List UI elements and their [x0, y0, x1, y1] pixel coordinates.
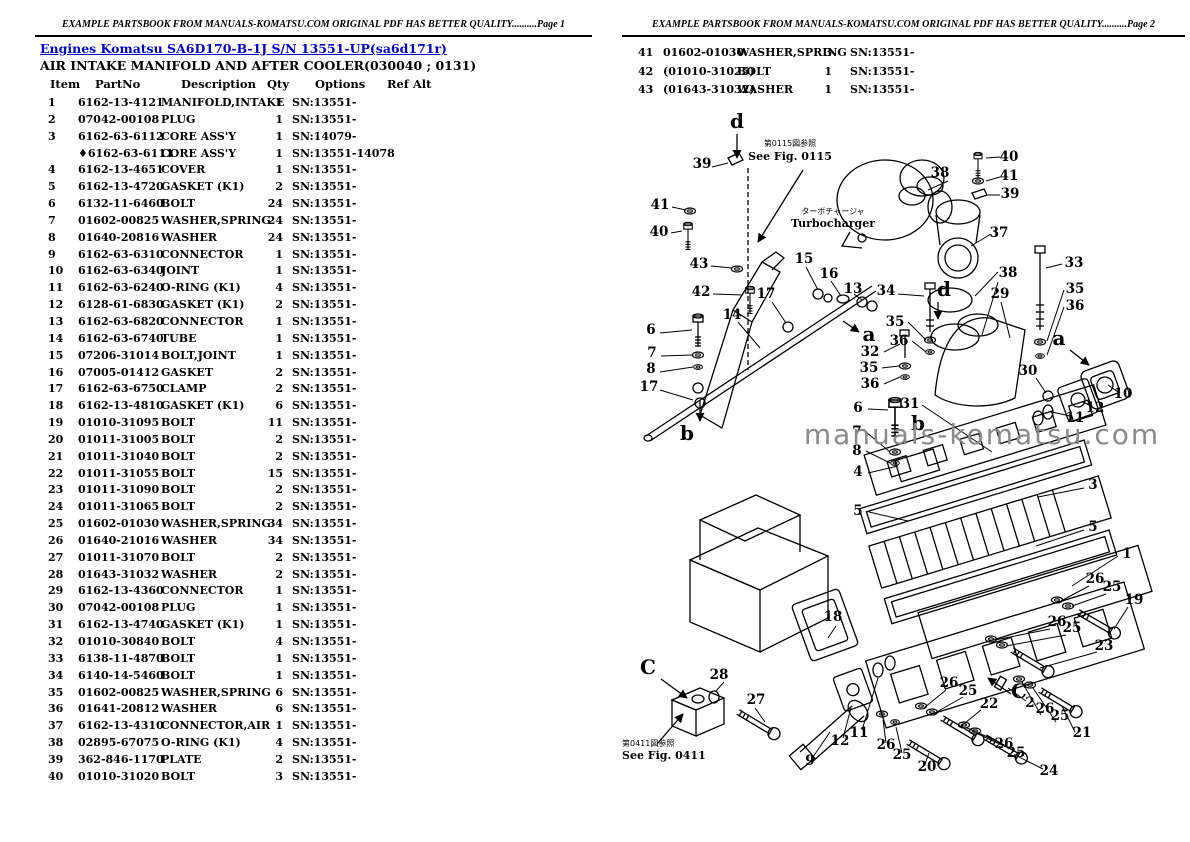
callout-26: 26 [1086, 571, 1105, 587]
callout-39: 39 [693, 156, 712, 172]
cell-qty: 2 [261, 179, 283, 196]
cell-description: WASHER [737, 81, 793, 100]
exploded-parts-diagram: 第0115図参照 See Fig. 0115 ターボチャージャ Turbocha… [595, 100, 1190, 842]
cell-qty: 2 [261, 482, 283, 499]
cell-options: SN:13551- [292, 280, 357, 297]
table-row: 3501602-00825WASHER,SPRING6SN:13551- [40, 685, 592, 702]
cover-4 [895, 449, 940, 482]
cell-options: SN:13551- [292, 752, 357, 769]
cell-description: GASKET [161, 365, 213, 382]
callout-6: 6 [646, 322, 655, 338]
callout-30: 30 [1019, 363, 1038, 379]
cell-qty: 2 [261, 752, 283, 769]
table-row: 36162-63-6112CORE ASS'Y1SN:14079- [40, 129, 592, 146]
callout-41: 41 [1000, 168, 1019, 184]
cell-options: SN:13551- [292, 381, 357, 398]
cell-partno: 6162-13-4810 [78, 398, 164, 415]
cell-options: SN:13551- [292, 701, 357, 718]
table-row: 43(01643-31032)WASHER1SN:13551- [622, 81, 1182, 100]
bolt-22-icon [939, 713, 986, 748]
cell-qty: 6 [261, 685, 283, 702]
cell-qty: 1 [820, 81, 832, 100]
cell-description: CORE ASS'Y [161, 146, 236, 163]
table-row: 66132-11-6460BOLT24SN:13551- [40, 196, 592, 213]
cell-qty: 1 [261, 95, 283, 112]
cell-description: GASKET (K1) [161, 617, 244, 634]
callout-11: 11 [850, 725, 869, 741]
cell-item: 9 [48, 247, 56, 264]
table-row: 116162-63-6240O-RING (K1)4SN:13551- [40, 280, 592, 297]
callout-20: 20 [918, 759, 937, 775]
cell-qty: 2 [261, 297, 283, 314]
cell-qty: 15 [261, 466, 283, 483]
cell-options: SN:13551- [292, 213, 357, 230]
table-row: 2001011-31005BOLT2SN:13551- [40, 432, 592, 449]
cell-options: SN:13551- [292, 365, 357, 382]
table-row: 3802895-67075O-RING (K1)4SN:13551- [40, 735, 592, 752]
cell-description: BOLT [161, 499, 195, 516]
cell-qty: 6 [261, 398, 283, 415]
table-row: 106162-63-6340JOINT1SN:13551- [40, 263, 592, 280]
cell-item: 14 [48, 331, 63, 348]
callout-25: 25 [1051, 708, 1070, 724]
cell-options: SN:13551-14078 [292, 146, 395, 163]
washer-28-icon [709, 691, 719, 703]
cell-description: BOLT [161, 432, 195, 449]
cell-partno: 6162-63-6740 [78, 331, 164, 348]
callout-6: 6 [853, 400, 862, 416]
callout-1: 1 [1122, 546, 1131, 562]
callout-32: 32 [861, 344, 880, 360]
cell-item: 30 [48, 600, 63, 617]
cell-description: CONNECTOR,AIR [161, 718, 270, 735]
cell-qty: 1 [261, 146, 283, 163]
cell-options: SN:13551- [292, 162, 357, 179]
cell-partno: 6162-13-4740 [78, 617, 164, 634]
table-row: 4101602-01030WASHER,SPRING3SN:13551- [622, 44, 1182, 63]
bolt-6-icon [693, 314, 703, 346]
callout-36: 36 [1066, 298, 1085, 314]
cell-qty: 4 [261, 634, 283, 651]
cell-qty: 2 [261, 381, 283, 398]
bolt-40-icon [974, 152, 982, 178]
cell-item: 38 [48, 735, 63, 752]
cell-options: SN:13551- [292, 466, 357, 483]
callout-a: a [1053, 326, 1066, 350]
o-ring-11-icon [873, 663, 883, 677]
callout-41: 41 [651, 197, 670, 213]
cell-partno: 6128-61-6830 [78, 297, 164, 314]
table-row: 2101011-31040BOLT2SN:13551- [40, 449, 592, 466]
cell-options: SN:13551- [292, 95, 357, 112]
cell-partno: 6138-11-4870 [78, 651, 164, 668]
cell-description: GASKET (K1) [161, 398, 244, 415]
cell-partno: 01010-31020 [78, 769, 159, 786]
cell-description: O-RING (K1) [161, 280, 241, 297]
cell-item: 29 [48, 583, 63, 600]
cell-options: SN:13551- [292, 499, 357, 516]
cell-item: 13 [48, 314, 63, 331]
cell-description: BOLT [161, 466, 195, 483]
cell-item: 34 [48, 668, 63, 685]
cell-description: TUBE [161, 331, 196, 348]
cell-options: SN:13551- [292, 449, 357, 466]
table-row: 316162-13-4740GASKET (K1)1SN:13551- [40, 617, 592, 634]
cell-qty: 1 [261, 314, 283, 331]
o-ring-11-icon [885, 656, 895, 670]
bolt-19-icon [1075, 607, 1123, 641]
bracket-leader-38 [975, 272, 998, 335]
table-row: 3601641-20812WASHER6SN:13551- [40, 701, 592, 718]
o-ring-38-icon [931, 324, 979, 350]
cell-description: BOLT [161, 769, 195, 786]
washer-26-icon [916, 703, 927, 709]
cell-description: WASHER [161, 230, 217, 247]
cell-partno: 01011-31065 [78, 499, 159, 516]
cover-box [690, 495, 828, 652]
callout-36: 36 [890, 333, 909, 349]
cell-description: JOINT [161, 263, 199, 280]
table-row: 2601640-21016WASHER34SN:13551- [40, 533, 592, 550]
cell-description: WASHER [161, 567, 217, 584]
cell-item: 28 [48, 567, 63, 584]
bolt-27-icon [735, 707, 782, 742]
fig0411-note-jp: 第0411図参照 [622, 738, 674, 748]
callout-8: 8 [646, 361, 655, 377]
table-row: 176162-63-6750CLAMP2SN:13551- [40, 381, 592, 398]
cell-qty: 4 [261, 280, 283, 297]
callout-a: a [863, 322, 876, 346]
cell-qty: 1 [261, 247, 283, 264]
cell-partno: 6162-63-6112 [78, 129, 164, 146]
col-ref-alt: Ref Alt [387, 77, 431, 91]
callout-33: 33 [1065, 255, 1084, 271]
callout-25: 25 [1063, 620, 1082, 636]
callout-38: 38 [931, 165, 950, 181]
cell-options: SN:13551- [292, 230, 357, 247]
cover-1 [918, 545, 1152, 658]
table-row: ♦6162-63-6111CORE ASS'Y1SN:13551-14078 [40, 146, 592, 163]
cell-item: 1 [48, 95, 56, 112]
cell-partno: 6140-14-5460 [78, 668, 164, 685]
table-row: 146162-63-6740TUBE1SN:13551- [40, 331, 592, 348]
callout-C: C [640, 655, 656, 679]
callout-4: 4 [853, 464, 862, 480]
cell-partno: 6162-13-4651 [78, 162, 164, 179]
cell-partno: 6162-13-4360 [78, 583, 164, 600]
cell-options: SN:13551- [292, 583, 357, 600]
gasket-18 [791, 588, 859, 661]
cell-options: SN:13551- [292, 297, 357, 314]
cell-description: WASHER,SPRING [161, 685, 271, 702]
callout-25: 25 [1007, 745, 1026, 761]
cell-options: SN:13551- [292, 263, 357, 280]
cell-options: SN:14079- [292, 129, 357, 146]
callout-27: 27 [747, 692, 766, 708]
cell-partno: 07042-00108 [78, 112, 159, 129]
table-row: 3007042-00108PLUG1SN:13551- [40, 600, 592, 617]
cell-partno: 6162-63-6750 [78, 381, 164, 398]
cell-description: GASKET (K1) [161, 179, 244, 196]
cell-qty: 1 [261, 348, 283, 365]
callout-38: 38 [999, 265, 1018, 281]
cell-item: 6 [48, 196, 56, 213]
callout-23: 23 [1095, 638, 1114, 654]
cell-options: SN:13551- [292, 516, 357, 533]
cell-description: CLAMP [161, 381, 206, 398]
cell-item: 19 [48, 415, 63, 432]
clamp-17-icon [693, 383, 703, 393]
col-item: Item [50, 77, 80, 91]
callout-2: 2 [1025, 695, 1034, 711]
washer-36-icon [926, 350, 935, 355]
cell-options: SN:13551- [292, 482, 357, 499]
cell-item: 16 [48, 365, 63, 382]
plug-30-icon [1043, 391, 1053, 401]
table-row: 46162-13-4651COVER1SN:13551- [40, 162, 592, 179]
table-row: 1507206-31014BOLT,JOINT1SN:13551- [40, 348, 592, 365]
table-row: 336138-11-4870BOLT1SN:13551- [40, 651, 592, 668]
cell-partno: 01602-01030 [663, 44, 744, 63]
cell-description: WASHER [161, 533, 217, 550]
callout-28: 28 [710, 667, 729, 683]
cell-partno: 01011-31055 [78, 466, 159, 483]
cell-options: SN:13551- [292, 314, 357, 331]
cell-description: PLUG [161, 112, 195, 129]
cell-item: 15 [48, 348, 63, 365]
table-row: 2801643-31032WASHER2SN:13551- [40, 567, 592, 584]
cell-partno: 02895-67075 [78, 735, 159, 752]
table-row: 136162-63-6820CONNECTOR1SN:13551- [40, 314, 592, 331]
cell-description: GASKET (K1) [161, 297, 244, 314]
table-row: 346140-14-5460BOLT1SN:13551- [40, 668, 592, 685]
cell-description: COVER [161, 162, 205, 179]
cell-item: 10 [48, 263, 63, 280]
manifold-block [866, 582, 1145, 728]
table-row: 2401011-31065BOLT2SN:13551- [40, 499, 592, 516]
cell-qty: 6 [261, 701, 283, 718]
callout-19: 19 [1125, 592, 1144, 608]
cell-qty: 1 [261, 263, 283, 280]
cell-partno: 01602-00825 [78, 685, 159, 702]
cell-qty: 1 [820, 63, 832, 82]
fig0411-part [672, 688, 724, 736]
cell-options: SN:13551- [292, 398, 357, 415]
table-row: 801640-20816WASHER24SN:13551- [40, 230, 592, 247]
cell-item: 43 [638, 81, 653, 100]
washer-36-icon [1036, 354, 1045, 359]
callout-12: 12 [831, 733, 850, 749]
plate-39-icon [972, 189, 987, 199]
cell-partno: 6162-63-6310 [78, 247, 164, 264]
cell-item: 2 [48, 112, 56, 129]
callout-26: 26 [940, 675, 959, 691]
table-row: 3201010-30840BOLT4SN:13551- [40, 634, 592, 651]
gasket-12b [833, 668, 874, 712]
col-options: Options [315, 77, 365, 91]
cell-item: 5 [48, 179, 56, 196]
cell-options: SN:13551- [292, 600, 357, 617]
cell-item: 22 [48, 466, 63, 483]
callout-34: 34 [877, 283, 896, 299]
cell-partno: 01640-20816 [78, 230, 159, 247]
cell-description: BOLT,JOINT [161, 348, 236, 365]
callout-5: 5 [1088, 519, 1097, 535]
washer-25-icon [891, 720, 900, 725]
cell-description: BOLT [161, 668, 195, 685]
cell-qty: 2 [261, 449, 283, 466]
table-row: 4001010-31020BOLT3SN:13551- [40, 769, 592, 786]
cell-qty: 3 [820, 44, 832, 63]
cell-item: 18 [48, 398, 63, 415]
cell-qty: 11 [261, 415, 283, 432]
table-row: 2701011-31070BOLT2SN:13551- [40, 550, 592, 567]
callout-12: 12 [1086, 400, 1105, 416]
cell-item: 7 [48, 213, 56, 230]
cell-partno: 07042-00108 [78, 600, 159, 617]
cell-item: 26 [48, 533, 63, 550]
cell-qty: 1 [261, 668, 283, 685]
cell-options: SN:13551- [292, 247, 357, 264]
callout-10: 10 [1114, 386, 1133, 402]
cell-options: SN:13551- [292, 718, 357, 735]
callout-d: d [730, 109, 744, 133]
cell-qty: 1 [261, 112, 283, 129]
cell-item: 17 [48, 381, 63, 398]
table-row: 2201011-31055BOLT15SN:13551- [40, 466, 592, 483]
cell-options: SN:13551- [292, 550, 357, 567]
cell-description: CONNECTOR [161, 314, 244, 331]
cell-qty: 2 [261, 550, 283, 567]
callout-22: 22 [980, 696, 999, 712]
fig0411-note: See Fig. 0411 [622, 749, 706, 762]
cell-qty: 4 [261, 735, 283, 752]
cell-options: SN:13551- [292, 617, 357, 634]
bolt-42-icon [746, 286, 755, 313]
bolt-40-icon [684, 222, 693, 249]
washer-35-icon [900, 363, 911, 369]
cell-options: SN:13551- [850, 63, 915, 82]
cell-partno: 01011-31040 [78, 449, 159, 466]
cell-partno: 07005-01412 [78, 365, 159, 382]
table-header-row: Item PartNo Description Qty Options Ref … [40, 77, 592, 92]
cell-description: WASHER [161, 701, 217, 718]
callout-14: 14 [723, 307, 742, 323]
table-row: 376162-13-4310CONNECTOR,AIR1SN:13551- [40, 718, 592, 735]
cell-qty: 2 [261, 432, 283, 449]
callout-18: 18 [824, 609, 843, 625]
table-row: 2301011-31090BOLT2SN:13551- [40, 482, 592, 499]
cell-options: SN:13551- [292, 735, 357, 752]
cell-partno: ♦6162-63-6111 [78, 146, 174, 163]
cell-description: CORE ASS'Y [161, 129, 236, 146]
cell-description: WASHER,SPRING [161, 516, 271, 533]
callout-d: d [937, 277, 951, 301]
cell-description: WASHER,SPRING [161, 213, 271, 230]
cell-options: SN:13551- [850, 44, 915, 63]
cell-item: 39 [48, 752, 63, 769]
callout-29: 29 [991, 286, 1010, 302]
cell-description: BOLT [161, 196, 195, 213]
cell-options: SN:13551- [292, 567, 357, 584]
cell-partno: 01010-30840 [78, 634, 159, 651]
table-row: 16162-13-4121MANIFOLD,INTAKE1SN:13551- [40, 95, 592, 112]
cell-item: 31 [48, 617, 63, 634]
col-qty: Qty [267, 77, 289, 91]
cell-qty: 2 [261, 499, 283, 516]
table-row: 56162-13-4720GASKET (K1)2SN:13551- [40, 179, 592, 196]
cell-options: SN:13551- [292, 685, 357, 702]
table-row: 1901010-31095BOLT11SN:13551- [40, 415, 592, 432]
callout-17: 17 [640, 379, 659, 395]
washer-36-icon [901, 375, 910, 380]
callout-17: 17 [757, 286, 776, 302]
cell-options: SN:13551- [292, 348, 357, 365]
callout-40: 40 [1000, 149, 1019, 165]
partsbook-scan: { "page1": { "header": "EXAMPLE PARTSBOO… [0, 0, 1190, 842]
table-row: 39362-846-1170PLATE2SN:13551- [40, 752, 592, 769]
cell-qty: 34 [261, 516, 283, 533]
cell-qty: 24 [261, 230, 283, 247]
bolt-33 [1035, 246, 1045, 330]
cell-item: 25 [48, 516, 63, 533]
cell-partno: 362-846-1170 [78, 752, 164, 769]
callout-16: 16 [820, 266, 839, 282]
table-row: 2501602-01030WASHER,SPRING34SN:13551- [40, 516, 592, 533]
page1-header: EXAMPLE PARTSBOOK FROM MANUALS-KOMATSU.C… [35, 19, 592, 37]
cell-qty: 1 [261, 583, 283, 600]
cell-partno: 01643-31032 [78, 567, 159, 584]
gasket-31 [859, 440, 1091, 534]
cell-description: PLUG [161, 600, 195, 617]
callout-35: 35 [860, 360, 879, 376]
page-title: AIR INTAKE MANIFOLD AND AFTER COOLER(030… [40, 58, 476, 73]
callout-7: 7 [647, 345, 656, 361]
cell-item: 42 [638, 63, 653, 82]
cell-qty: 2 [261, 567, 283, 584]
callout-b: b [680, 421, 694, 445]
callout-39: 39 [1001, 186, 1020, 202]
cell-partno: 07206-31014 [78, 348, 159, 365]
bolt-23-icon [1009, 645, 1056, 680]
cell-options: SN:13551- [292, 179, 357, 196]
washer-35-icon [1035, 339, 1046, 345]
callout-25: 25 [959, 683, 978, 699]
cell-partno: 01011-31090 [78, 482, 159, 499]
callout-43: 43 [690, 256, 709, 272]
col-partno: PartNo [95, 77, 140, 91]
callout-35: 35 [1066, 281, 1085, 297]
table-row: 296162-13-4360CONNECTOR1SN:13551- [40, 583, 592, 600]
callout-35: 35 [886, 314, 905, 330]
washer-35-icon [925, 337, 936, 343]
cell-item: 40 [48, 769, 63, 786]
cell-options: SN:13551- [850, 81, 915, 100]
cell-options: SN:13551- [292, 196, 357, 213]
cell-item: 37 [48, 718, 63, 735]
cell-item: 27 [48, 550, 63, 567]
washer-41-icon [973, 178, 984, 184]
parts-table-page1: 16162-13-4121MANIFOLD,INTAKE1SN:13551-20… [40, 95, 592, 786]
callout-13: 13 [844, 281, 863, 297]
cell-qty: 1 [261, 718, 283, 735]
cell-partno: 01010-31095 [78, 415, 159, 432]
callout-9: 9 [805, 753, 814, 769]
cell-partno: 01602-00825 [78, 213, 159, 230]
breadcrumb-model-link[interactable]: Engines Komatsu SA6D170-B-1J S/N 13551-U… [40, 41, 447, 56]
cell-partno: 6162-63-6240 [78, 280, 164, 297]
callout-21: 21 [1073, 725, 1092, 741]
